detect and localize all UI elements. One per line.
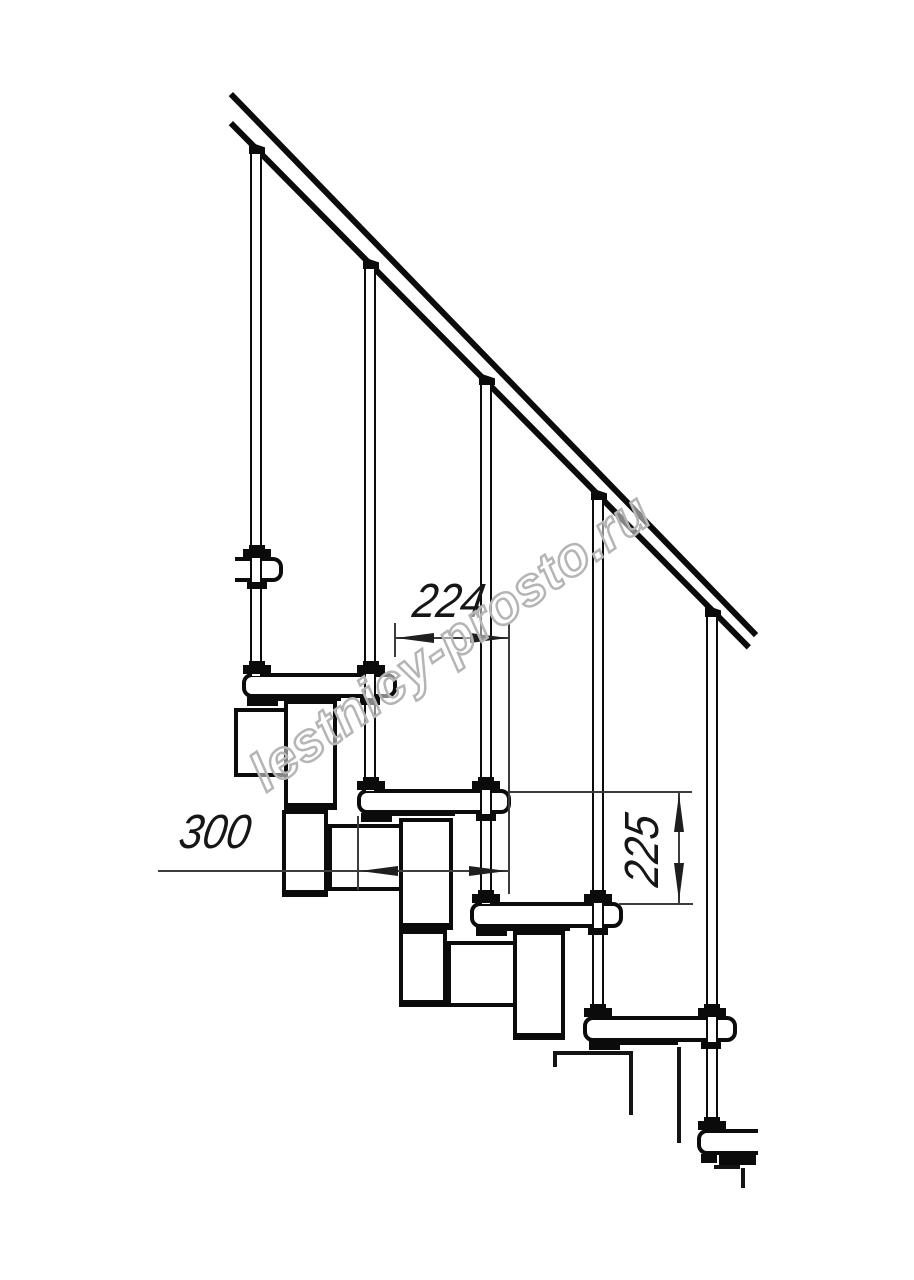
break-line: [677, 1047, 681, 1143]
baluster-collar: [584, 894, 612, 903]
collar-nub: [363, 777, 379, 782]
break-line: [629, 1051, 633, 1115]
arrowhead-right: [469, 866, 507, 876]
tread-shadow-line: [619, 1040, 678, 1045]
collar-nub: [249, 545, 265, 550]
baluster-collar: [584, 1008, 612, 1017]
dimension-label-300: 300: [176, 809, 255, 857]
baluster: [250, 151, 262, 676]
baluster-collar: [698, 1008, 726, 1017]
break-line: [741, 1168, 745, 1188]
spine-module-column: [399, 818, 453, 930]
extension-line: [509, 791, 692, 793]
collar-under-nub: [476, 814, 496, 821]
baluster-collar: [698, 1121, 726, 1130]
collar-under-nub: [701, 1042, 721, 1049]
spine-module-column: [513, 931, 565, 1040]
tread-shadow-line: [391, 811, 455, 816]
tread-shadow-line: [506, 926, 570, 931]
extension-line: [619, 903, 693, 905]
spine-module-column: [282, 810, 328, 897]
arrowhead-up: [674, 794, 684, 832]
collar-nub: [249, 661, 265, 666]
spine-module-column: [399, 930, 447, 1007]
baluster-collar: [243, 549, 271, 558]
tread-bracket: [701, 1154, 717, 1163]
lower-tread-block: [719, 1152, 756, 1165]
collar-nub: [590, 890, 606, 895]
extension-line: [508, 623, 510, 894]
extension-line: [357, 816, 359, 890]
collar-under-nub: [247, 582, 267, 589]
spine-module-box: [447, 941, 522, 1007]
break-line: [553, 1051, 557, 1067]
baluster-rail-cap: [363, 257, 379, 269]
handrail-upper-line: [229, 92, 758, 637]
spine-module-box: [328, 824, 403, 891]
collar-nub: [478, 890, 494, 895]
break-line: [553, 1051, 632, 1055]
arrowhead-down: [674, 863, 684, 901]
staircase-technical-drawing: 224 300 225 lestnicy-prosto.ru: [0, 0, 914, 1280]
baluster-collar: [243, 665, 271, 674]
collar-under-nub: [588, 928, 608, 935]
collar-nub: [590, 1004, 606, 1009]
tread-bracket: [589, 1041, 620, 1050]
baluster-rail-cap: [249, 142, 265, 154]
collar-nub: [704, 1117, 720, 1122]
break-line: [714, 1165, 740, 1169]
baluster-collar: [472, 894, 500, 903]
tread-bracket: [361, 813, 392, 822]
collar-nub: [478, 777, 494, 782]
collar-nub: [704, 1004, 720, 1009]
baluster-collar: [357, 781, 385, 790]
dimension-label-225: 225: [619, 811, 667, 890]
baluster-collar: [472, 781, 500, 790]
tread-bracket: [476, 927, 507, 936]
baluster-rail-cap: [479, 373, 495, 385]
dimension-line-300: [158, 870, 508, 872]
arrowhead-left: [360, 866, 398, 876]
baluster: [706, 614, 718, 1130]
tread-bracket: [247, 697, 278, 706]
